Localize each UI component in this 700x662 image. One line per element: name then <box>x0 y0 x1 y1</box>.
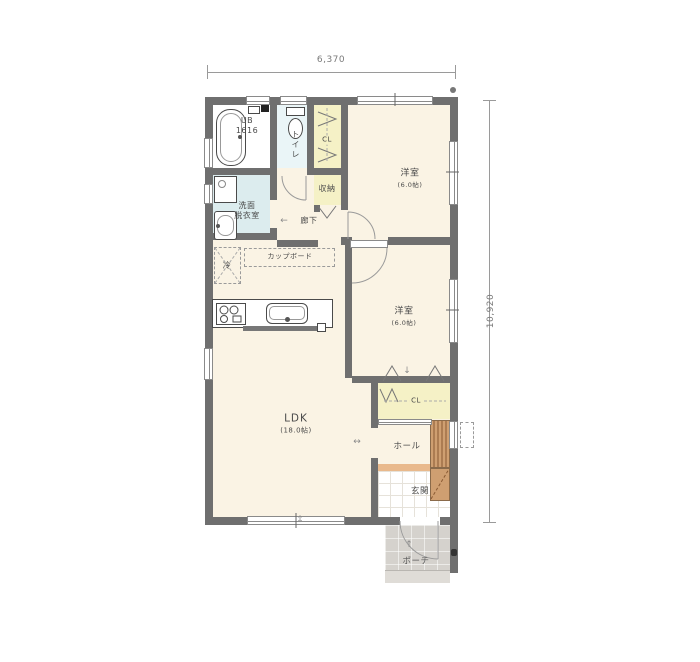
bath-label-line1: UB <box>241 116 253 125</box>
wall-bedroom1-bottom <box>388 237 450 245</box>
wall-washroom-right-b <box>270 228 277 240</box>
corner-marker <box>450 87 456 93</box>
stairs-lower <box>430 468 450 501</box>
ldk-size: (18.0帖) <box>280 427 312 436</box>
wall-toilet-right <box>307 104 314 175</box>
floorplan: 6,370 10,920 <box>0 0 700 662</box>
shower-panel-icon <box>248 106 260 114</box>
counter-front <box>243 326 317 331</box>
bedroom2-size: (6.0帖) <box>392 319 417 327</box>
porch-label: ポーチ <box>402 557 429 568</box>
entrance-label: 玄関 <box>411 487 429 498</box>
wall-entrance-left <box>371 458 378 517</box>
hallway-label: 廊下 <box>301 216 318 226</box>
dim-width-label: 6,370 <box>317 55 345 65</box>
wall-hallway-bottom <box>277 240 318 247</box>
door-handle-icon <box>451 549 457 556</box>
entry-step <box>378 464 438 471</box>
hall-opening-arrow-icon: ↔ <box>353 437 361 447</box>
dim-tick <box>483 522 496 523</box>
hallway-ldk-opening <box>318 240 341 247</box>
ldk-label: LDK <box>284 412 308 425</box>
storage-label: 収納 <box>319 184 336 194</box>
sink-faucet-icon <box>285 317 290 322</box>
wall-storage-stub <box>314 205 320 212</box>
washroom-label-line2: 脱衣室 <box>234 211 260 220</box>
closet2-sliding-door <box>378 419 432 425</box>
bedroom2-door-leaf <box>350 240 388 248</box>
ldk-hall-opening <box>371 428 378 458</box>
bedroom1-label: 洋室 <box>400 168 419 179</box>
wall-bath-right <box>270 104 277 175</box>
washer-pan-icon <box>214 176 237 203</box>
bedroom1-size: (6.0帖) <box>398 181 423 189</box>
window-bath-left <box>204 138 213 168</box>
bath-counter-icon <box>261 105 269 112</box>
stove-icon <box>216 303 246 325</box>
fridge-label: 冷 <box>223 261 232 271</box>
dim-tick <box>455 65 456 79</box>
wall-bath-bottom <box>205 168 270 175</box>
window-bedroom2-right <box>449 279 458 343</box>
washer-drain-icon <box>218 180 226 188</box>
washroom-label: 洗面 脱衣室 <box>234 201 260 221</box>
wall-washroom-right-a <box>270 175 277 200</box>
porch-step <box>385 570 450 583</box>
washroom-label-line1: 洗面 <box>239 201 256 210</box>
window-toilet-top <box>280 96 307 105</box>
ldk-window-arrow-icon: ↕ <box>296 515 304 525</box>
wall-bedroom2-bottom <box>352 376 450 383</box>
hall-label: ホール <box>393 442 420 453</box>
closet1-label: CL <box>321 136 333 145</box>
window-shutter-dashed <box>460 422 474 448</box>
wall-bedroom2-left <box>345 245 352 378</box>
entrance-door-opening <box>400 517 440 525</box>
washroom-door-arrow-icon: ← <box>280 216 288 226</box>
dim-line-top <box>207 72 456 73</box>
wall-closet1-right <box>341 104 348 210</box>
closet2-arrow-icon: ↓ <box>403 366 411 376</box>
cupboard-label: カップボード <box>268 253 313 262</box>
bath-label-line2: 1616 <box>236 126 258 135</box>
window-ldk-left <box>204 348 213 380</box>
window-bedroom1-top <box>357 96 433 105</box>
wall-closet2-left <box>371 383 378 428</box>
bedroom2-label: 洋室 <box>394 306 413 317</box>
dim-tick <box>207 65 208 79</box>
stairs-upper <box>430 420 450 468</box>
dim-tick <box>483 100 496 101</box>
entrance-direction-arrow-icon: ↑ <box>405 540 413 550</box>
toilet-label: トイレ <box>290 130 300 160</box>
bath-label: UB 1616 <box>236 116 258 136</box>
window-stair-right <box>449 421 458 449</box>
wall-closet1-bottom <box>314 168 341 175</box>
dim-height-label: 10,920 <box>486 294 496 329</box>
counter-end-box <box>317 323 326 332</box>
closet2-label: CL <box>409 397 423 406</box>
window-bedroom1-right <box>449 141 458 205</box>
window-washroom-left <box>204 184 213 204</box>
toilet-tank-icon <box>286 107 305 116</box>
washbasin-faucet-icon <box>216 224 220 228</box>
window-bath-top <box>246 96 270 105</box>
